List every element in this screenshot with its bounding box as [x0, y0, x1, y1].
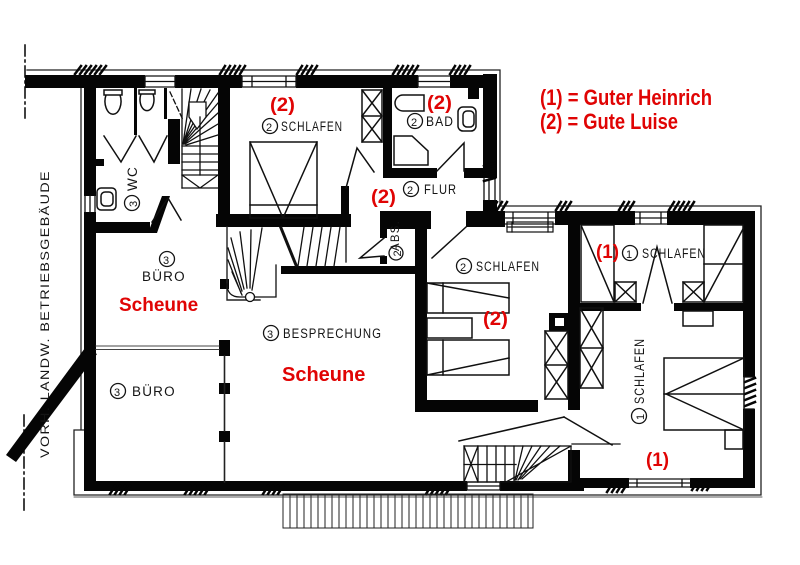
svg-text:3: 3: [163, 255, 169, 267]
svg-text:1: 1: [626, 249, 632, 261]
svg-text:WC: WC: [125, 166, 140, 191]
svg-text:(1): (1): [646, 449, 669, 471]
svg-text:2: 2: [266, 122, 272, 134]
svg-text:(2): (2): [371, 186, 396, 208]
svg-text:(2): (2): [483, 308, 508, 330]
svg-text:VORH. LANDW. BETRIEBSGEBÄUDE: VORH. LANDW. BETRIEBSGEBÄUDE: [38, 170, 52, 458]
svg-text:SCHLAFEN: SCHLAFEN: [476, 259, 540, 274]
svg-text:Scheune: Scheune: [119, 295, 198, 316]
svg-text:SCHLAFEN: SCHLAFEN: [642, 246, 706, 261]
svg-text:2: 2: [460, 262, 466, 274]
svg-text:(2): (2): [427, 92, 452, 114]
svg-text:BESPRECHUNG: BESPRECHUNG: [283, 326, 382, 341]
svg-text:Scheune: Scheune: [282, 364, 365, 386]
svg-text:2: 2: [411, 117, 417, 129]
svg-text:(2): (2): [270, 94, 295, 116]
svg-text:BÜRO: BÜRO: [132, 384, 176, 399]
svg-text:(1): (1): [596, 241, 619, 263]
svg-text:3: 3: [267, 329, 273, 341]
svg-text:2: 2: [407, 185, 413, 197]
svg-text:BÜRO: BÜRO: [142, 269, 186, 284]
svg-text:SCHLAFEN: SCHLAFEN: [281, 119, 343, 134]
svg-text:(1) = Guter Heinrich: (1) = Guter Heinrich: [540, 85, 712, 110]
svg-text:1: 1: [635, 414, 647, 420]
svg-text:SCHLAFEN: SCHLAFEN: [632, 338, 647, 404]
svg-text:3: 3: [114, 387, 120, 399]
svg-text:BAD: BAD: [426, 114, 454, 129]
svg-text:ABS.: ABS.: [390, 220, 402, 251]
svg-text:(2) = Gute Luise: (2) = Gute Luise: [540, 109, 678, 134]
svg-text:FLUR: FLUR: [424, 182, 457, 197]
svg-text:3: 3: [128, 201, 140, 207]
